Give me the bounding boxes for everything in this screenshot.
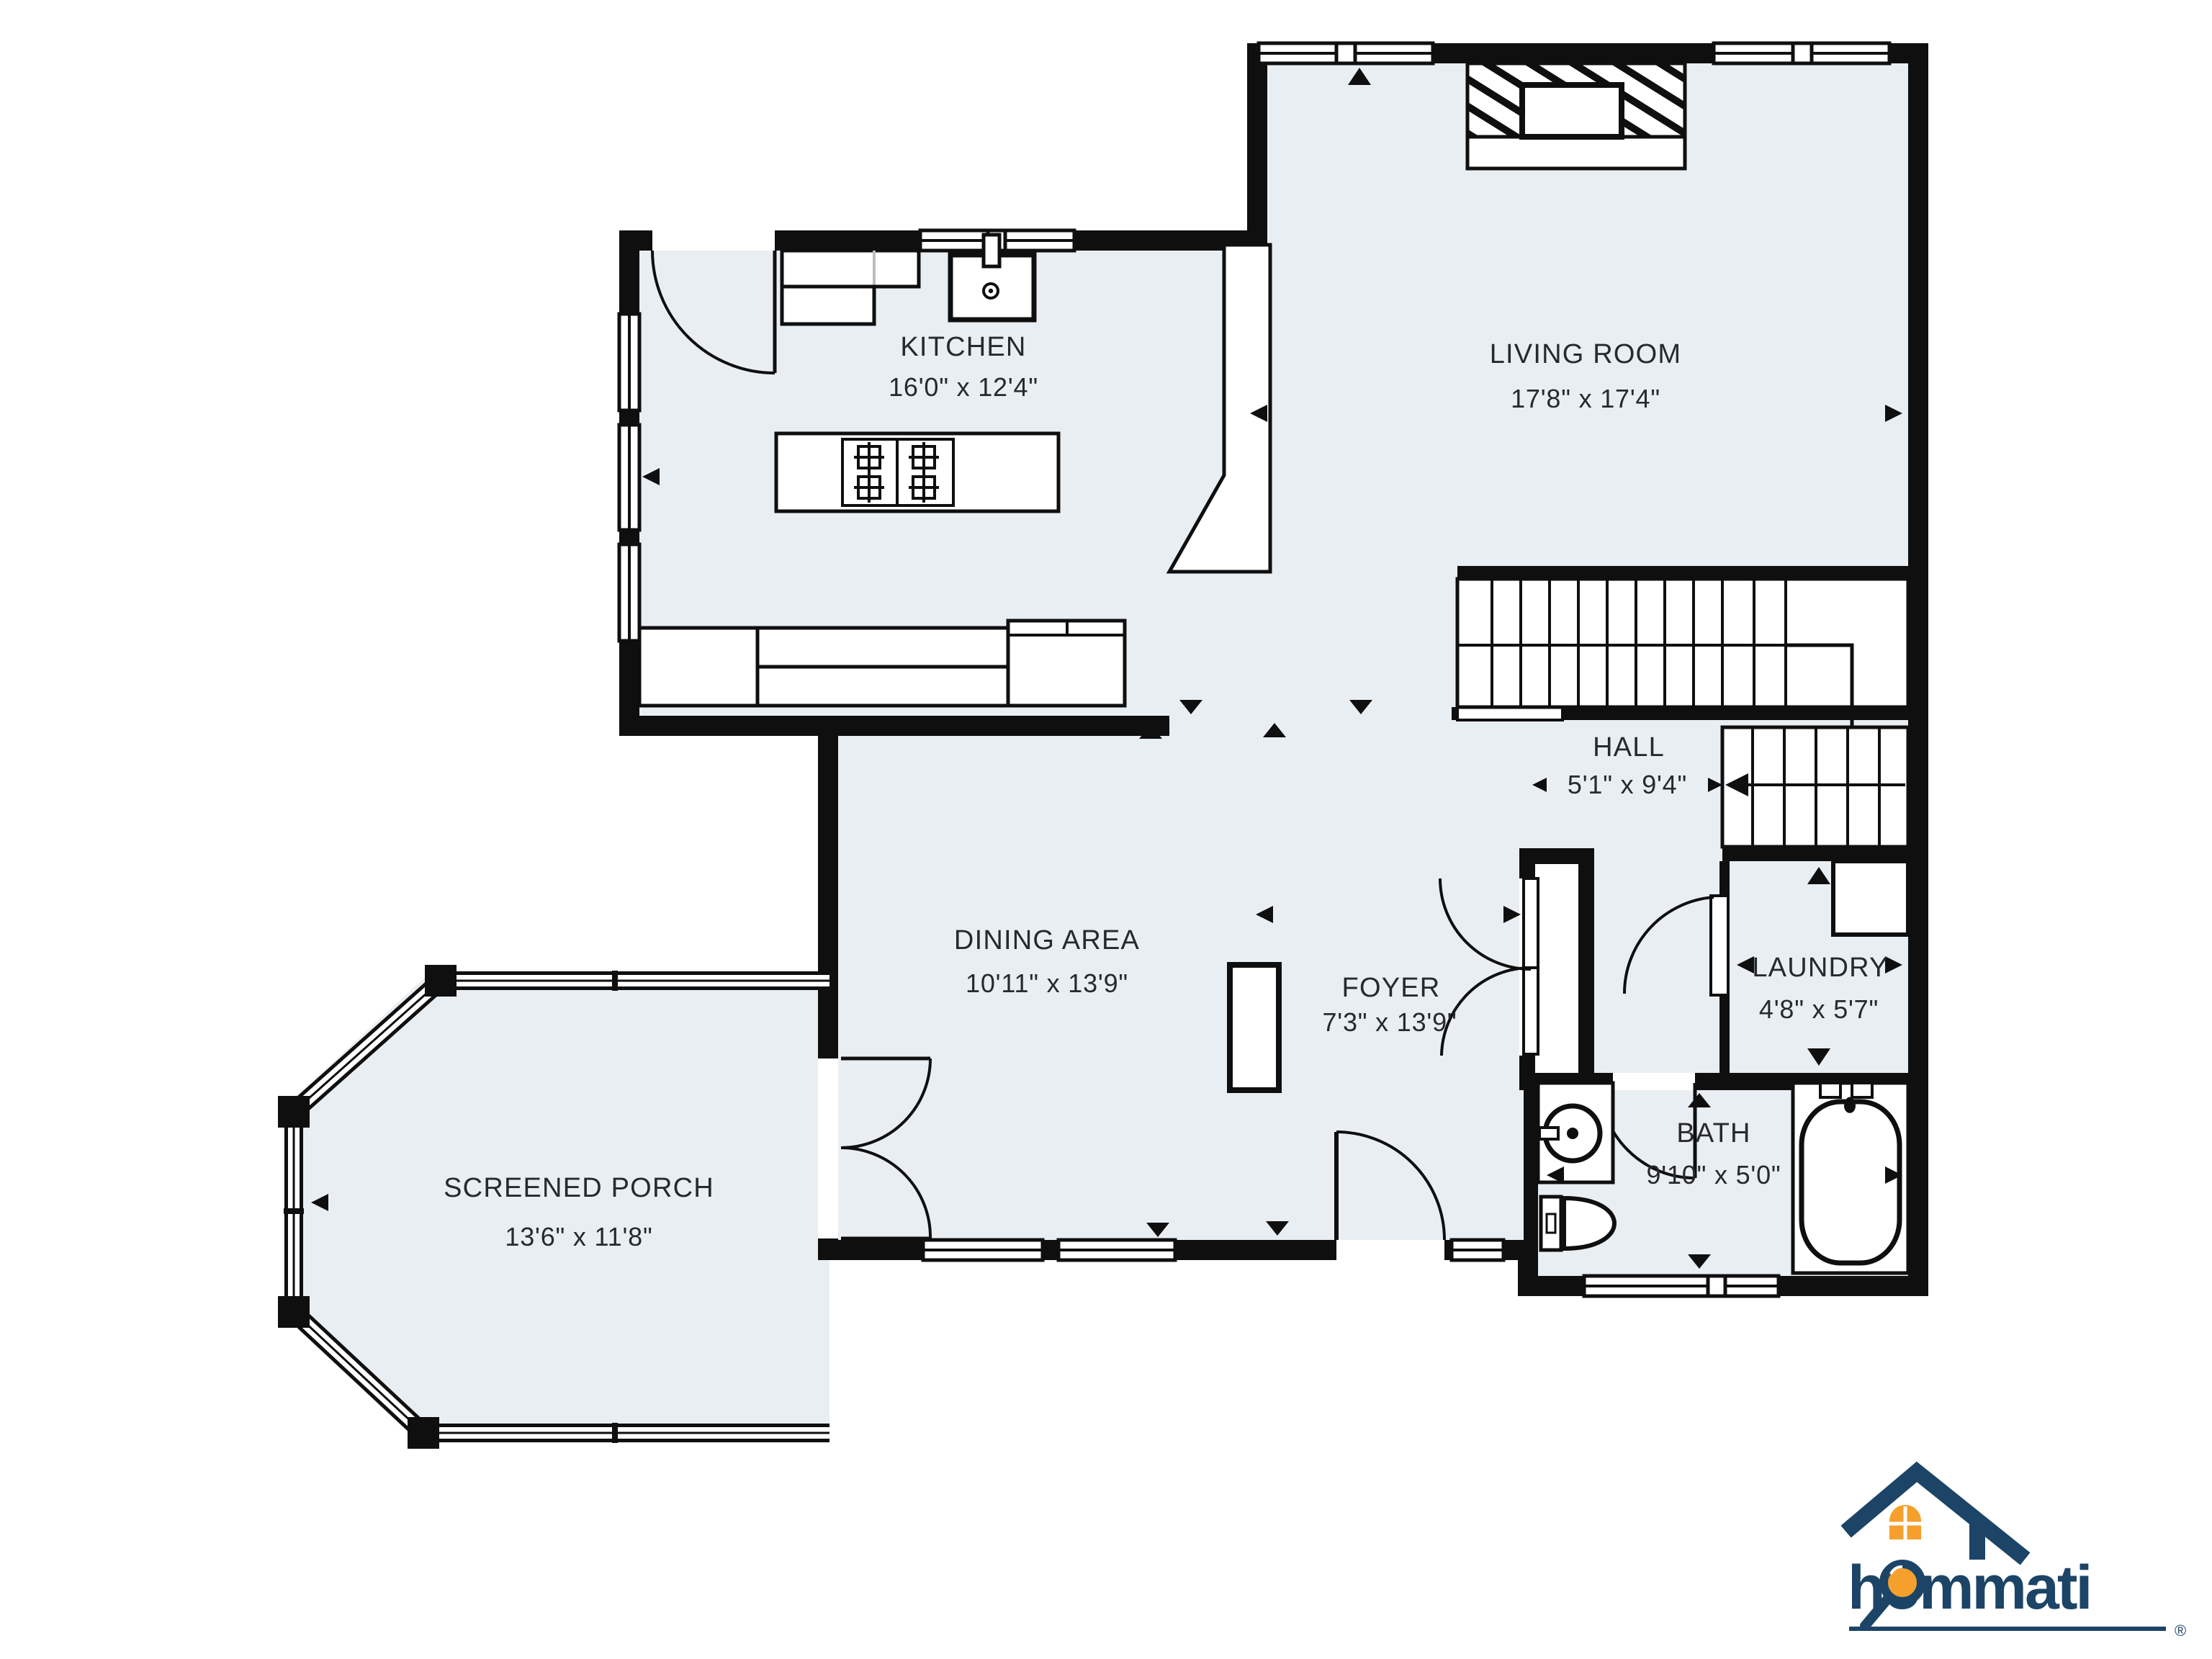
dining-area-dims: 10'11" x 13'9" <box>966 968 1128 998</box>
kitchen-counter-top <box>782 251 919 287</box>
dining-foyer-divider <box>1230 965 1279 1090</box>
washer-icon <box>1833 861 1908 935</box>
dining-area-name: DINING AREA <box>954 925 1140 956</box>
living-window-left <box>1259 43 1433 63</box>
kitchen-name: KITCHEN <box>900 332 1026 362</box>
kitchen-counter-top2 <box>782 287 874 324</box>
bath-sink-icon <box>1538 1083 1613 1182</box>
bath-name: BATH <box>1676 1118 1750 1148</box>
fireplace-icon <box>1467 63 1685 168</box>
laundry-dims: 4'8" x 5'7" <box>1759 994 1879 1024</box>
hall-dims: 5'1" x 9'4" <box>1568 770 1687 799</box>
screened-porch-name: SCREENED PORCH <box>444 1173 714 1203</box>
laundry-name: LAUNDRY <box>1752 953 1888 983</box>
kitchen-island <box>776 433 1058 511</box>
kitchen-bottom-wall <box>619 716 1169 736</box>
kitchen-windows-left <box>619 314 639 641</box>
foyer-dims: 7'3" x 13'9" <box>1322 1007 1457 1037</box>
living-window-right <box>1714 43 1889 63</box>
bath-dims: 9'10" x 5'0" <box>1646 1160 1781 1190</box>
kitchen-dims: 16'0" x 12'4" <box>889 372 1038 402</box>
right-wall <box>1908 43 1928 1296</box>
hommati-logo: hommati ® <box>1848 1472 2186 1640</box>
bath-window-bottom <box>1584 1276 1779 1296</box>
foyer-sidelight-window <box>1452 1240 1503 1260</box>
logo-registered-mark: ® <box>2175 1622 2186 1640</box>
floorplan-canvas: KITCHEN 16'0" x 12'4" LIVING ROOM 17'8" … <box>0 0 2212 1659</box>
living-room-name: LIVING ROOM <box>1490 339 1682 369</box>
kitchen-counter-bottom <box>639 621 1125 706</box>
staircase-lower <box>1722 727 1908 847</box>
bath-left-wall <box>1524 1083 1538 1276</box>
screened-porch-dims: 13'6" x 11'8" <box>505 1222 652 1251</box>
living-left-wall <box>1247 43 1267 251</box>
toilet-icon <box>1541 1197 1614 1250</box>
logo-house-icon <box>1852 1472 2019 1560</box>
living-stairs-wall <box>1457 566 1928 579</box>
hall-name: HALL <box>1593 732 1665 763</box>
closet-interior <box>1535 864 1578 1073</box>
living-room-dims: 17'8" x 17'4" <box>1511 384 1660 413</box>
hall-foyer-opening <box>1457 707 1563 720</box>
closet-right-wall <box>1578 848 1594 1083</box>
foyer-name: FOYER <box>1342 973 1441 1003</box>
